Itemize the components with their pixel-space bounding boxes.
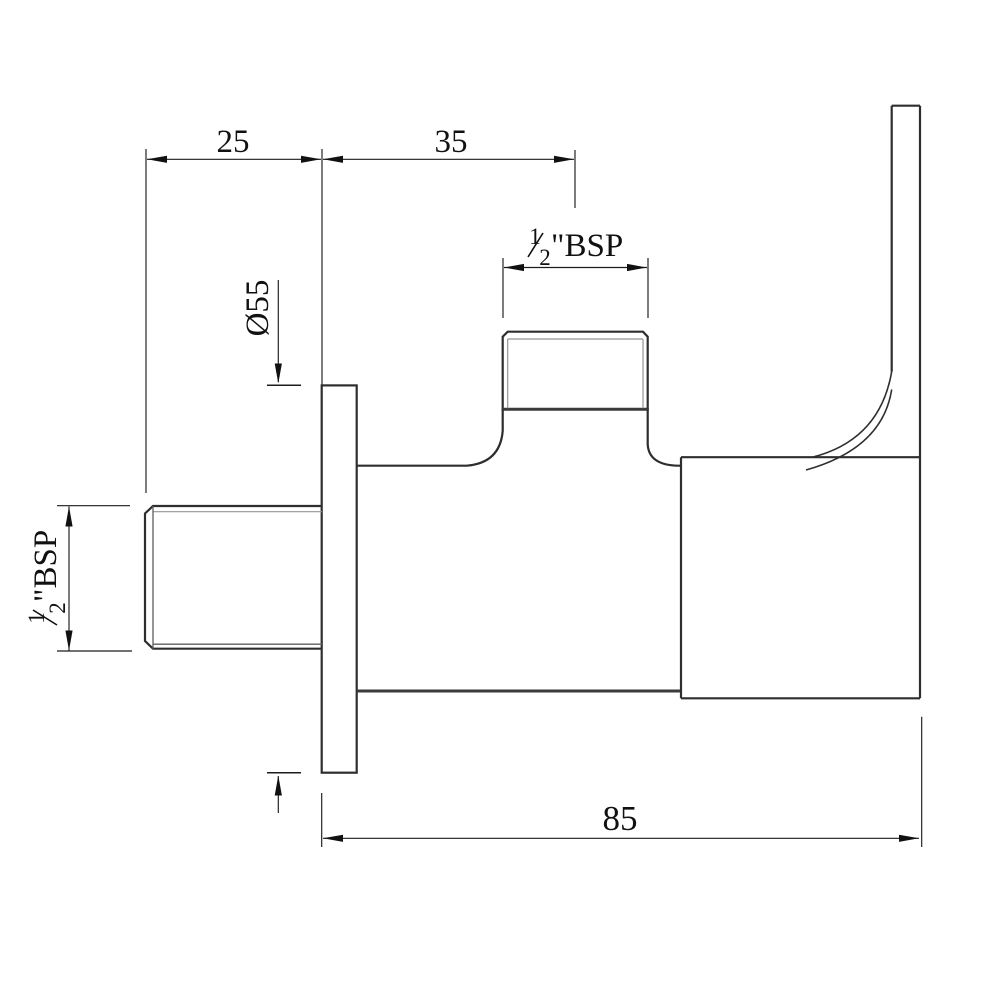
dimension-diameter-55: Ø55 (240, 280, 301, 813)
inlet-spigot-outline (145, 506, 322, 649)
dim-35-arrow-right (554, 156, 574, 163)
dim-25-arrow-right (301, 156, 321, 163)
dim-d55-arrow-up (275, 776, 282, 796)
dimension-bsp-top: 1 2 "BSP (503, 224, 648, 318)
top-port-outline (503, 332, 648, 410)
dimension-35: 35 (323, 124, 575, 208)
dim-85-text: 85 (603, 799, 638, 838)
bsp-suffix: "BSP (28, 530, 64, 602)
handle-curve-outer (813, 372, 892, 458)
dim-d55-text: Ø55 (240, 280, 276, 337)
cartridge-housing (681, 457, 920, 698)
dim-bsp-top-arrow-left (504, 264, 524, 271)
wall-flange-outline (322, 385, 357, 772)
wall-flange (322, 385, 357, 772)
dim-35-arrow-left (323, 156, 343, 163)
dimension-bsp-left: 1 2 "BSP (24, 506, 132, 651)
dim-25-arrow-left (147, 156, 167, 163)
dimension-25: 25 (146, 124, 322, 493)
dim-25-text: 25 (217, 124, 250, 160)
valve-body (357, 409, 681, 691)
bsp-suffix: "BSP (551, 228, 623, 264)
dim-bsp-top-arrow-right (627, 264, 647, 271)
dim-85-arrow-right (899, 835, 919, 842)
top-port (502, 332, 649, 410)
fraction-denominator: 2 (45, 602, 70, 614)
fraction-denominator: 2 (539, 245, 551, 270)
dim-85-arrow-left (323, 835, 343, 842)
lever-handle (806, 106, 920, 699)
dim-d55-arrow-down (275, 364, 282, 384)
dim-bsp-left-label: 1 2 "BSP (24, 530, 70, 625)
dim-35-text: 35 (435, 124, 468, 160)
dim-bsp-left-arrow-top (65, 507, 72, 527)
dim-bsp-top-label: 1 2 "BSP (528, 224, 623, 270)
dim-bsp-left-arrow-bottom (65, 631, 72, 651)
technical-drawing-page: 25 35 1 2 "BSP 1 2 "BSP (0, 0, 1000, 1000)
inlet-spigot (145, 506, 322, 649)
valve-body-top-left-fillet (357, 409, 503, 465)
valve-body-top-right-fillet (648, 409, 681, 465)
dimension-85: 85 (322, 717, 922, 847)
technical-drawing-canvas: 25 35 1 2 "BSP 1 2 "BSP (0, 0, 1000, 1000)
